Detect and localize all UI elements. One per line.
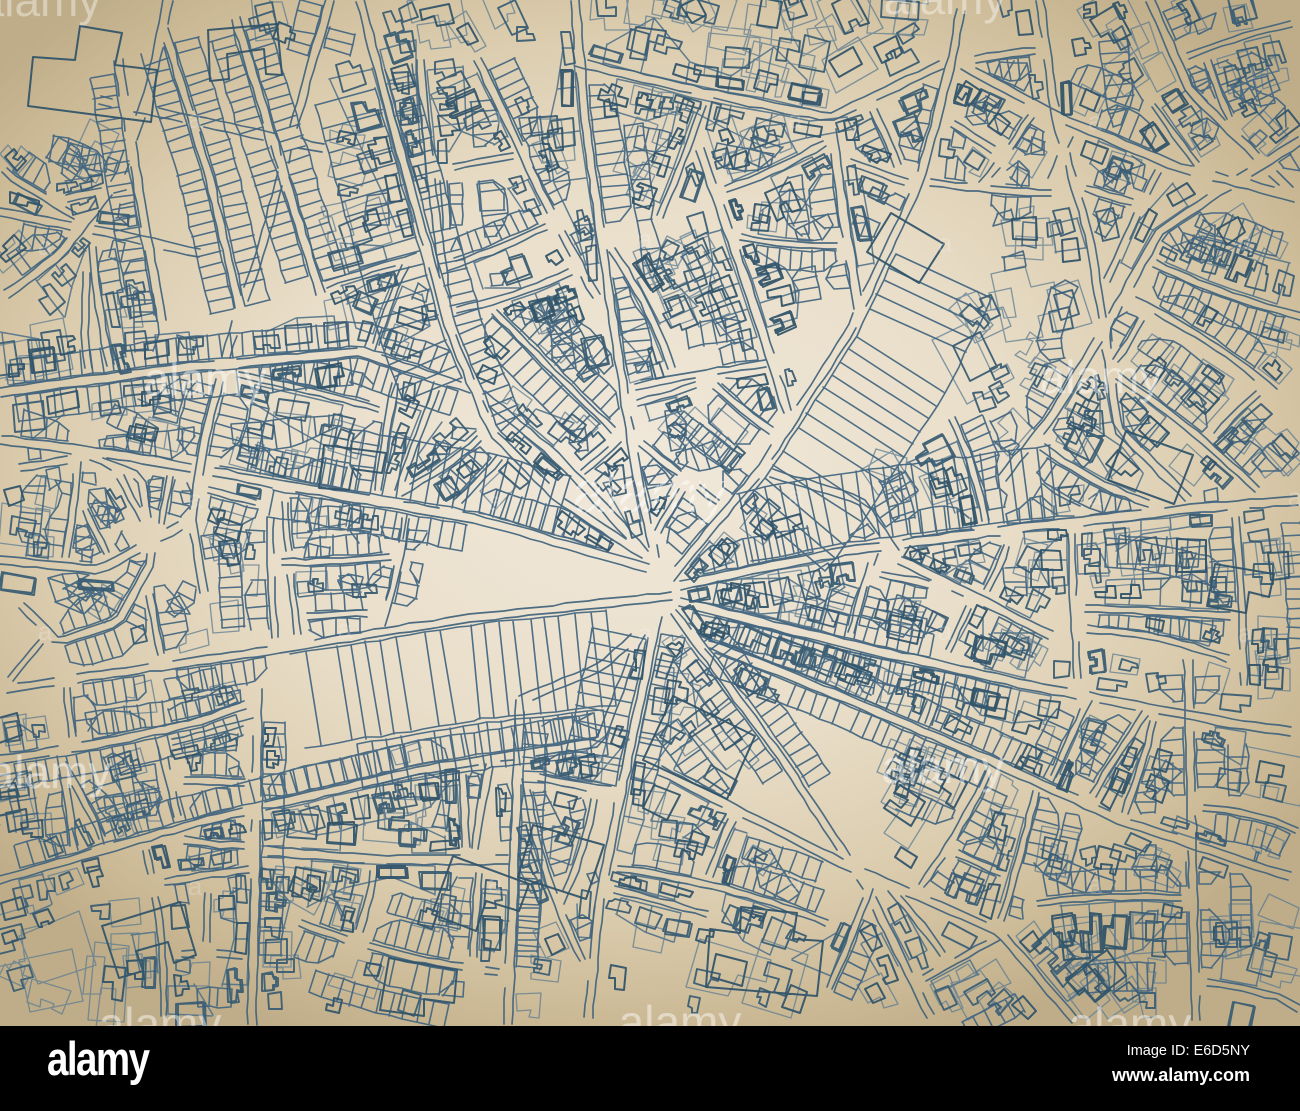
svg-text:a: a	[188, 484, 203, 514]
svg-text:a: a	[38, 616, 53, 646]
svg-text:a: a	[788, 481, 803, 511]
svg-text:a: a	[638, 618, 653, 648]
svg-text:a: a	[488, 101, 503, 131]
svg-text:alamy: alamy	[144, 353, 267, 405]
svg-text:alamy: alamy	[0, 0, 101, 26]
svg-text:a: a	[188, 871, 203, 901]
svg-text:a: a	[38, 231, 53, 261]
svg-text:a: a	[1088, 106, 1103, 136]
svg-text:a: a	[338, 226, 353, 256]
svg-text:a: a	[338, 614, 353, 644]
svg-text:alamy: alamy	[573, 460, 728, 525]
svg-text:a: a	[1238, 618, 1253, 648]
svg-text:a: a	[938, 616, 953, 646]
svg-text:a: a	[788, 104, 803, 134]
svg-text:alamy: alamy	[0, 746, 111, 798]
svg-text:a: a	[938, 228, 953, 258]
svg-text:a: a	[1088, 481, 1103, 511]
svg-text:a: a	[1088, 869, 1103, 899]
svg-text:a: a	[488, 868, 503, 898]
svg-text:alamy: alamy	[99, 998, 222, 1026]
svg-text:a: a	[788, 866, 803, 896]
svg-text:alamy: alamy	[619, 996, 742, 1026]
svg-text:alamy: alamy	[884, 0, 1007, 24]
svg-text:alamy: alamy	[1040, 351, 1163, 403]
svg-text:a: a	[1288, 482, 1300, 512]
svg-text:a: a	[488, 486, 503, 516]
svg-text:alamy: alamy	[882, 741, 1005, 793]
svg-text:alamy: alamy	[1069, 998, 1192, 1026]
svg-text:a: a	[1238, 226, 1253, 256]
svg-text:a: a	[188, 104, 203, 134]
svg-text:a: a	[638, 224, 653, 254]
